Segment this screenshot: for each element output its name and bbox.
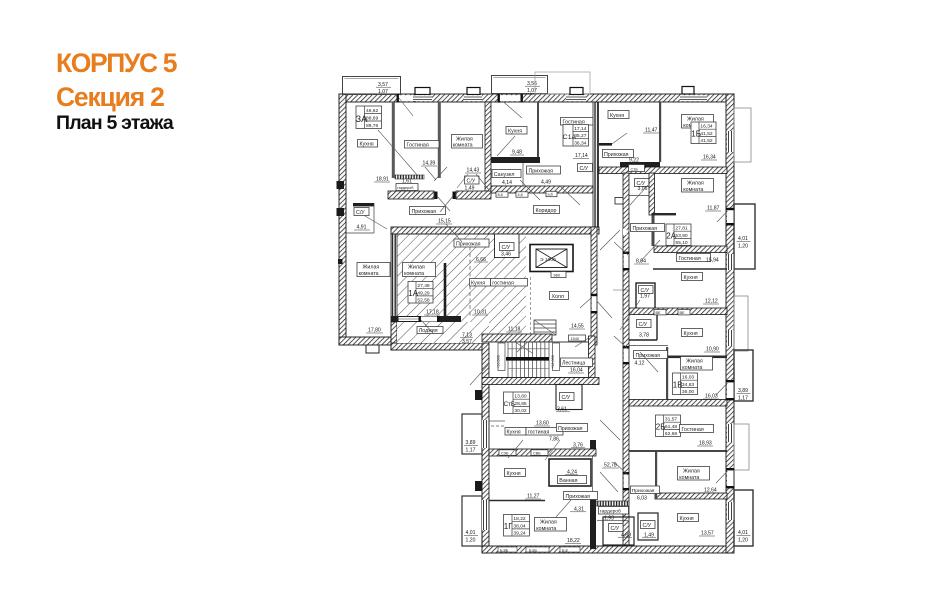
svg-text:53,90: 53,90 [675, 233, 688, 239]
svg-text:Жилая: Жилая [363, 265, 380, 271]
svg-text:Жилая: Жилая [687, 180, 704, 186]
svg-text:4,14: 4,14 [502, 180, 512, 186]
svg-text:15,15: 15,15 [438, 219, 451, 225]
svg-text:13,57: 13,57 [701, 531, 714, 537]
svg-text:1,97: 1,97 [640, 294, 650, 300]
svg-text:Кухня: Кухня [680, 516, 694, 522]
svg-text:13,60: 13,60 [514, 394, 527, 400]
svg-text:План 5 этажа: План 5 этажа [56, 112, 174, 134]
svg-text:гостиная: гостиная [492, 280, 514, 286]
svg-text:С/У: С/У [580, 166, 589, 172]
svg-text:36,00: 36,00 [682, 389, 695, 395]
svg-text:комната: комната [536, 526, 556, 532]
svg-text:Прихожая: Прихожая [558, 426, 583, 432]
svg-text:27,81: 27,81 [675, 226, 688, 232]
svg-text:34,83: 34,83 [682, 382, 695, 388]
svg-text:17,80: 17,80 [368, 328, 381, 334]
svg-text:Санузел: Санузел [494, 172, 515, 178]
svg-text:16,04: 16,04 [570, 368, 583, 374]
svg-text:Лестница: Лестница [562, 361, 585, 367]
svg-text:Прихожая: Прихожая [412, 209, 437, 215]
svg-text:15,94: 15,94 [706, 258, 719, 264]
svg-text:С/У: С/У [356, 210, 365, 216]
svg-text:8,6: 8,6 [498, 193, 503, 197]
svg-text:комната: комната [683, 187, 703, 193]
svg-text:С1Б: С1Б [631, 167, 639, 171]
svg-text:16,03: 16,03 [705, 394, 718, 400]
svg-text:41,52: 41,52 [700, 138, 713, 144]
svg-text:С/У: С/У [611, 526, 620, 532]
svg-text:30,02: 30,02 [514, 408, 527, 414]
svg-text:Кухня: Кухня [684, 275, 698, 281]
svg-text:С/У: С/У [643, 523, 652, 529]
svg-text:гардероб: гардероб [397, 186, 414, 190]
svg-text:Прихожая: Прихожая [633, 226, 658, 232]
svg-text:55,10: 55,10 [675, 240, 688, 246]
svg-text:Секция 2: Секция 2 [56, 82, 164, 112]
svg-text:Ванная: Ванная [559, 478, 577, 484]
svg-text:1,20: 1,20 [738, 538, 748, 544]
svg-text:1,49: 1,49 [465, 186, 475, 192]
svg-text:18,93: 18,93 [699, 441, 712, 447]
svg-text:18,91: 18,91 [376, 177, 389, 183]
svg-text:4,91: 4,91 [357, 225, 367, 231]
svg-text:СВБ: СВБ [533, 451, 541, 455]
svg-text:комната: комната [359, 271, 379, 277]
svg-text:16,34: 16,34 [700, 124, 713, 130]
svg-text:14,39: 14,39 [423, 161, 436, 167]
svg-text:Лоджия: Лоджия [419, 328, 438, 334]
svg-text:14,43: 14,43 [467, 168, 480, 174]
svg-text:Коридор: Коридор [536, 208, 557, 214]
svg-text:1,07: 1,07 [527, 88, 537, 94]
svg-text:35,27: 35,27 [574, 133, 587, 139]
svg-text:Прихожая: Прихожая [636, 353, 661, 359]
svg-text:17,14: 17,14 [574, 126, 587, 132]
svg-text:7,86: 7,86 [549, 437, 559, 443]
svg-text:1,17: 1,17 [466, 448, 476, 454]
svg-text:39,24: 39,24 [513, 531, 526, 537]
svg-text:4,49: 4,49 [541, 180, 551, 186]
svg-text:18,22: 18,22 [513, 516, 526, 522]
svg-text:1,61: 1,61 [402, 179, 412, 185]
svg-text:1,20: 1,20 [738, 244, 748, 250]
svg-text:+10,500: +10,500 [497, 355, 501, 369]
svg-text:КОРПУС 5: КОРПУС 5 [56, 48, 177, 78]
svg-text:Кухня: Кухня [507, 429, 521, 435]
svg-text:31,57: 31,57 [665, 417, 678, 423]
svg-text:1,20: 1,20 [466, 538, 476, 544]
svg-text:14,55: 14,55 [571, 324, 584, 330]
svg-text:комната: комната [453, 143, 473, 149]
svg-text:комната: комната [679, 475, 699, 481]
svg-text:Б,8: Б,8 [562, 549, 568, 553]
svg-text:46,62: 46,62 [366, 108, 379, 114]
svg-text:СЗБ: СЗБ [501, 451, 509, 455]
svg-text:11,27: 11,27 [527, 494, 540, 500]
svg-text:3,46: 3,46 [501, 252, 511, 258]
svg-text:Кухня: Кухня [360, 141, 374, 147]
svg-text:4,6: 4,6 [518, 193, 523, 197]
svg-text:Прихожая: Прихожая [632, 488, 655, 494]
svg-text:Б,8Б: Б,8Б [500, 549, 509, 553]
svg-text:Э60: Э60 [553, 274, 560, 278]
svg-text:36,34: 36,34 [574, 140, 587, 146]
svg-text:9,48: 9,48 [512, 150, 522, 156]
svg-text:41,52: 41,52 [700, 131, 713, 137]
svg-text:1Г: 1Г [504, 522, 513, 531]
svg-text:а,б: а,б [548, 193, 554, 197]
svg-text:Э 1000: Э 1000 [540, 257, 556, 263]
svg-text:17,18: 17,18 [426, 310, 439, 316]
svg-text:3,57: 3,57 [462, 339, 472, 345]
svg-text:Жилая: Жилая [686, 358, 703, 364]
svg-text:гостиная: гостиная [528, 429, 550, 435]
svg-text:комната: комната [404, 271, 424, 277]
svg-text:Жилая: Жилая [687, 116, 704, 122]
svg-text:62,68: 62,68 [665, 431, 678, 437]
svg-text:1,07: 1,07 [378, 89, 388, 95]
svg-text:Жилая: Жилая [456, 136, 473, 142]
svg-text:1540: 1540 [571, 337, 579, 341]
svg-text:4,12: 4,12 [635, 361, 645, 367]
svg-text:Прихожая: Прихожая [604, 152, 629, 158]
svg-text:Жилая: Жилая [408, 265, 425, 271]
svg-text:Прихожая: Прихожая [529, 168, 554, 174]
svg-text:17,14: 17,14 [575, 153, 588, 159]
svg-text:С/У: С/У [562, 395, 571, 401]
svg-text:Прихожая: Прихожая [566, 494, 591, 500]
svg-text:Прихожая: Прихожая [456, 241, 481, 247]
svg-text:12,12: 12,12 [705, 299, 718, 305]
svg-text:ВЕ: ВЕ [680, 311, 686, 315]
svg-text:16,03: 16,03 [682, 375, 695, 381]
svg-text:ВЕ: ВЕ [656, 311, 662, 315]
svg-text:Холл: Холл [552, 294, 564, 300]
svg-text:Б,8а: Б,8а [529, 549, 538, 553]
svg-text:8,94: 8,94 [636, 259, 646, 265]
svg-text:61,48: 61,48 [665, 424, 678, 430]
svg-text:88,69: 88,69 [366, 115, 379, 121]
svg-text:52,78: 52,78 [604, 463, 617, 469]
svg-text:Кухня: Кухня [471, 280, 485, 286]
svg-text:СтБ: СтБ [504, 401, 515, 408]
svg-text:+12,000: +12,000 [551, 355, 555, 369]
svg-text:Жилая: Жилая [540, 519, 557, 525]
svg-text:комната: комната [682, 365, 702, 371]
svg-text:гардероб: гардероб [600, 508, 621, 514]
svg-text:13,60: 13,60 [536, 421, 549, 427]
svg-text:Гостиная: Гостиная [407, 142, 429, 148]
svg-text:Гостиная: Гостиная [682, 427, 704, 433]
svg-text:Кухня: Кухня [684, 331, 698, 337]
svg-text:11,18: 11,18 [508, 327, 521, 333]
svg-text:Гостиная: Гостиная [679, 256, 701, 262]
svg-text:С/У: С/У [502, 245, 511, 251]
svg-text:С/У: С/У [467, 178, 476, 184]
svg-text:89,76: 89,76 [366, 123, 379, 129]
svg-text:Жилая: Жилая [683, 468, 700, 474]
svg-text:28,85: 28,85 [514, 401, 527, 407]
svg-text:11,87: 11,87 [707, 206, 720, 212]
svg-text:6,03: 6,03 [637, 496, 647, 502]
svg-text:52,58: 52,58 [417, 298, 430, 304]
svg-text:Кухня: Кухня [610, 113, 624, 119]
svg-text:С/У: С/У [639, 322, 648, 328]
svg-text:49,29: 49,29 [417, 290, 430, 296]
svg-text:Кухня: Кухня [508, 128, 522, 134]
svg-text:1,17: 1,17 [738, 396, 748, 402]
svg-text:38,04: 38,04 [513, 523, 526, 529]
svg-text:3,78: 3,78 [639, 333, 649, 339]
svg-text:11,47: 11,47 [645, 128, 658, 134]
svg-text:16,34: 16,34 [703, 155, 716, 161]
svg-text:27,49: 27,49 [417, 283, 430, 289]
svg-text:10,90: 10,90 [706, 347, 719, 353]
svg-text:10,31: 10,31 [474, 310, 487, 316]
svg-text:Кухня: Кухня [507, 471, 521, 477]
